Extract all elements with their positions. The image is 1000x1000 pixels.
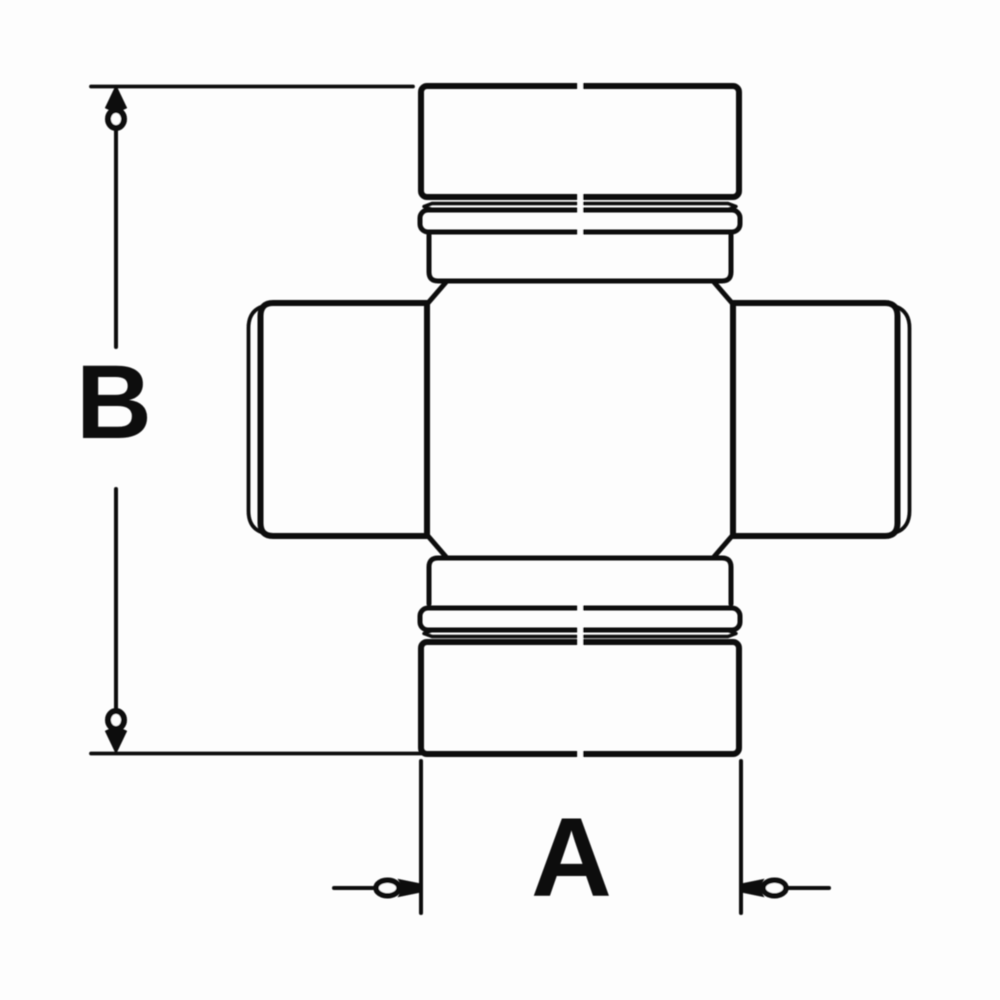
- svg-text:A: A: [531, 795, 612, 920]
- svg-text:B: B: [76, 344, 152, 461]
